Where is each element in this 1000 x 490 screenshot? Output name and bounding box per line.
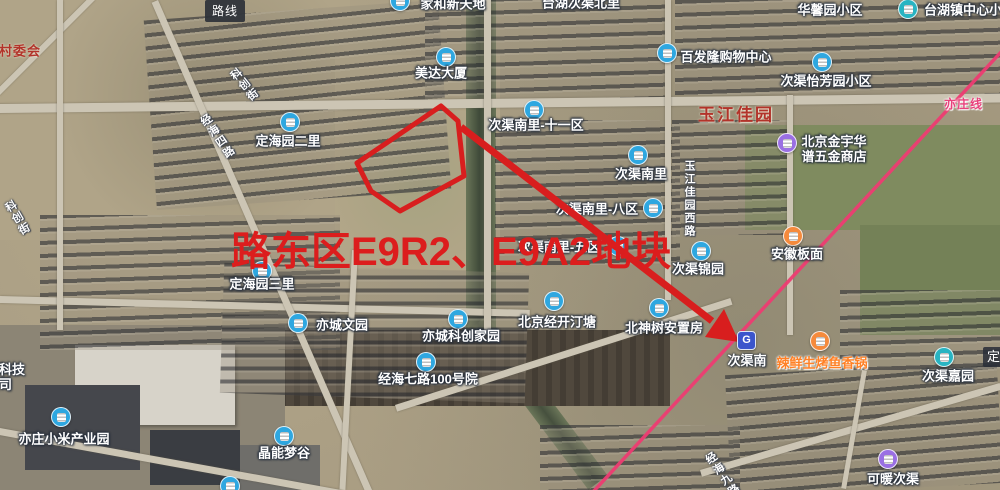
plot-outline	[357, 106, 464, 211]
edge-partial-label: 定	[983, 347, 1000, 367]
metro-station-label[interactable]: 次渠南	[727, 350, 766, 369]
route-button[interactable]: 路线	[205, 0, 245, 22]
annotation-arrow-head	[705, 309, 739, 342]
annotation-text: 路东区E9R2、E9A2地块	[231, 219, 671, 277]
satellite-map[interactable]: 亦庄线 路东区E9R2、E9A2地块 G 次渠南 路线 定 家和新天地台湖次渠北…	[0, 0, 1000, 490]
metro-station-icon[interactable]: G	[737, 331, 756, 350]
